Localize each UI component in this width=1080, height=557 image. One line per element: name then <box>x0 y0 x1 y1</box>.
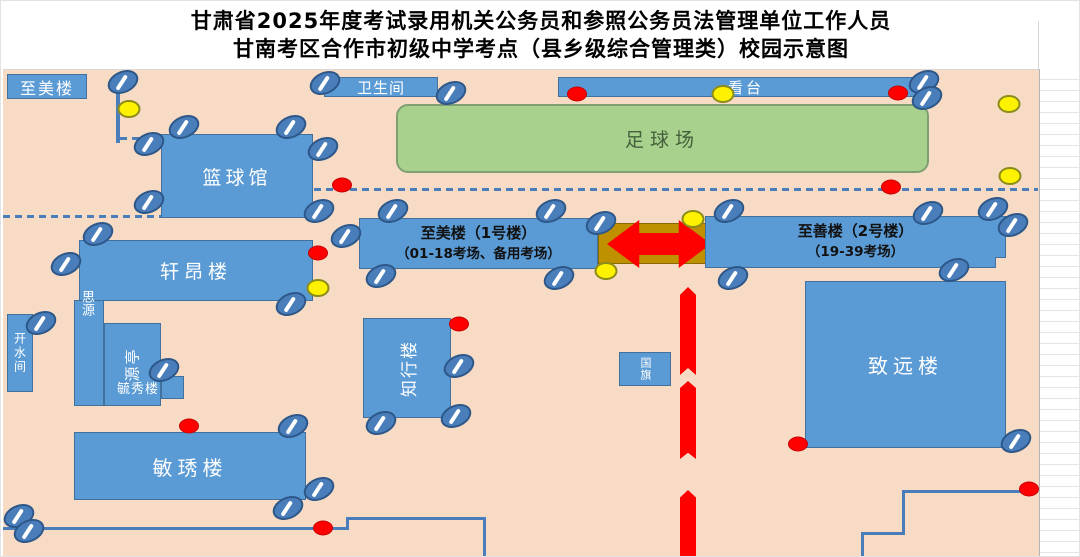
football-field: 足球场 <box>396 104 929 173</box>
building-label: 至美楼 <box>20 75 74 99</box>
building-label: 毓秀楼 <box>117 382 159 397</box>
building-label: 思源 <box>77 290 96 316</box>
boundary-wall <box>346 517 486 520</box>
yuxiu-label-wrap: 毓秀楼 <box>117 378 183 397</box>
route-arrow-icon <box>680 381 696 459</box>
gate-post-right <box>861 532 864 557</box>
building-basketball-hall: 篮球馆 <box>161 134 313 218</box>
route-arrow-icon <box>680 287 696 375</box>
gridline <box>1038 21 1039 69</box>
building-label: 看台 <box>728 77 764 98</box>
building-label: 致远楼 <box>868 350 943 379</box>
gate-post-left <box>483 517 486 557</box>
building-zhixing: 知行楼 <box>363 318 451 418</box>
building-label: 至善楼（2号楼） <box>798 221 913 243</box>
pole-line <box>116 81 120 143</box>
map-title-line2: 甘南考区合作市初级中学考点（县乡级综合管理类）校园示意图 <box>1 35 1080 63</box>
building-zhimei-sign: 至美楼 <box>7 74 87 99</box>
building-minxiu: 敏琇楼 <box>74 432 306 500</box>
dashed-path-main <box>314 188 1038 191</box>
building-sublabel: （19-39考场） <box>798 243 913 263</box>
boundary-wall <box>902 490 1038 493</box>
national-flag-stand: 国旗 <box>619 352 671 386</box>
building-label: 至美楼（1号楼） <box>396 223 561 245</box>
dashed-path-short <box>120 137 162 140</box>
building-sublabel: （01-18考场、备用考场） <box>396 245 561 265</box>
boundary-wall <box>861 532 905 535</box>
title-area: 甘肃省2025年度考试录用机关公务员和参照公务员法管理单位工作人员 甘南考区合作… <box>1 1 1080 69</box>
spreadsheet-grid-strip <box>1039 69 1080 557</box>
siyuan-label-wrap: 思源 <box>77 290 103 320</box>
building-label: 源亭 <box>122 347 143 381</box>
building-zhimei-no1-exam: 至美楼（1号楼） （01-18考场、备用考场） <box>359 218 598 269</box>
building-xuanang: 轩昂楼 <box>79 240 313 301</box>
dashed-path-left <box>3 215 161 218</box>
building-grandstand: 看台 <box>558 77 934 97</box>
building-restroom: 卫生间 <box>324 77 438 97</box>
campus-map: 甘肃省2025年度考试录用机关公务员和参照公务员法管理单位工作人员 甘南考区合作… <box>0 0 1080 557</box>
building-label: 国旗 <box>637 357 653 381</box>
building-label: 篮球馆 <box>202 163 271 190</box>
building-label: 轩昂楼 <box>160 257 232 284</box>
building-label: 知行楼 <box>395 340 420 397</box>
building-label: 卫生间 <box>357 77 405 98</box>
building-zhiyuan: 致远楼 <box>805 281 1006 448</box>
building-hot-water-room: 开水间 <box>7 314 33 392</box>
building-label: 敏琇楼 <box>153 452 228 481</box>
boundary-wall <box>3 527 348 530</box>
boundary-wall <box>902 490 905 535</box>
map-title-line1: 甘肃省2025年度考试录用机关公务员和参照公务员法管理单位工作人员 <box>1 7 1080 35</box>
route-arrow-icon <box>680 490 696 557</box>
building-label: 开水间 <box>12 332 29 374</box>
football-field-label: 足球场 <box>625 125 700 152</box>
building-zhishan-no2-exam: 至善楼（2号楼） （19-39考场） <box>705 216 1006 268</box>
building-notch <box>995 257 1006 268</box>
